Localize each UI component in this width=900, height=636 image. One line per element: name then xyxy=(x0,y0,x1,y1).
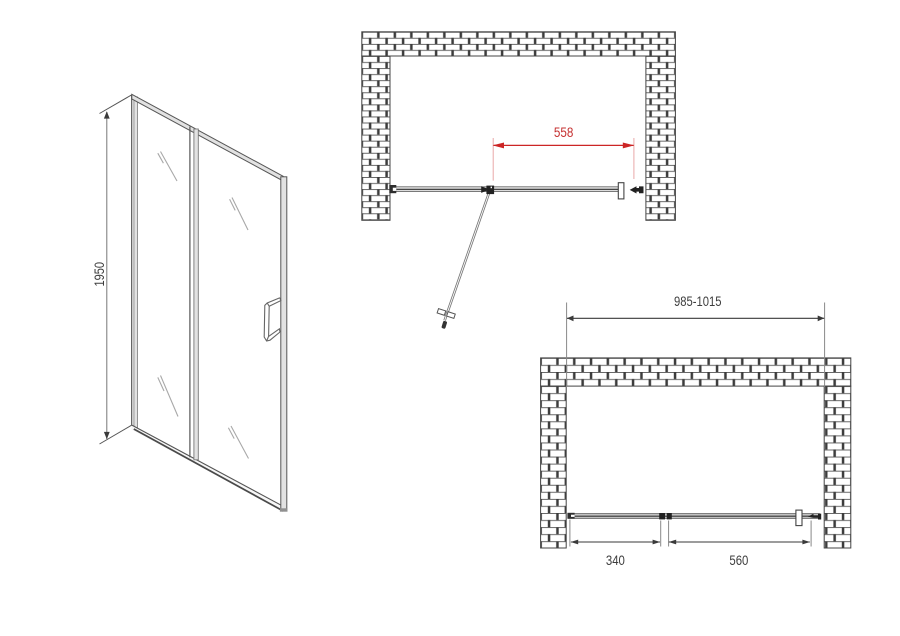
svg-text:985-1015: 985-1015 xyxy=(674,294,722,309)
svg-text:340: 340 xyxy=(606,553,625,568)
svg-text:1950: 1950 xyxy=(92,262,107,287)
svg-text:558: 558 xyxy=(554,125,574,140)
svg-text:560: 560 xyxy=(729,553,748,568)
